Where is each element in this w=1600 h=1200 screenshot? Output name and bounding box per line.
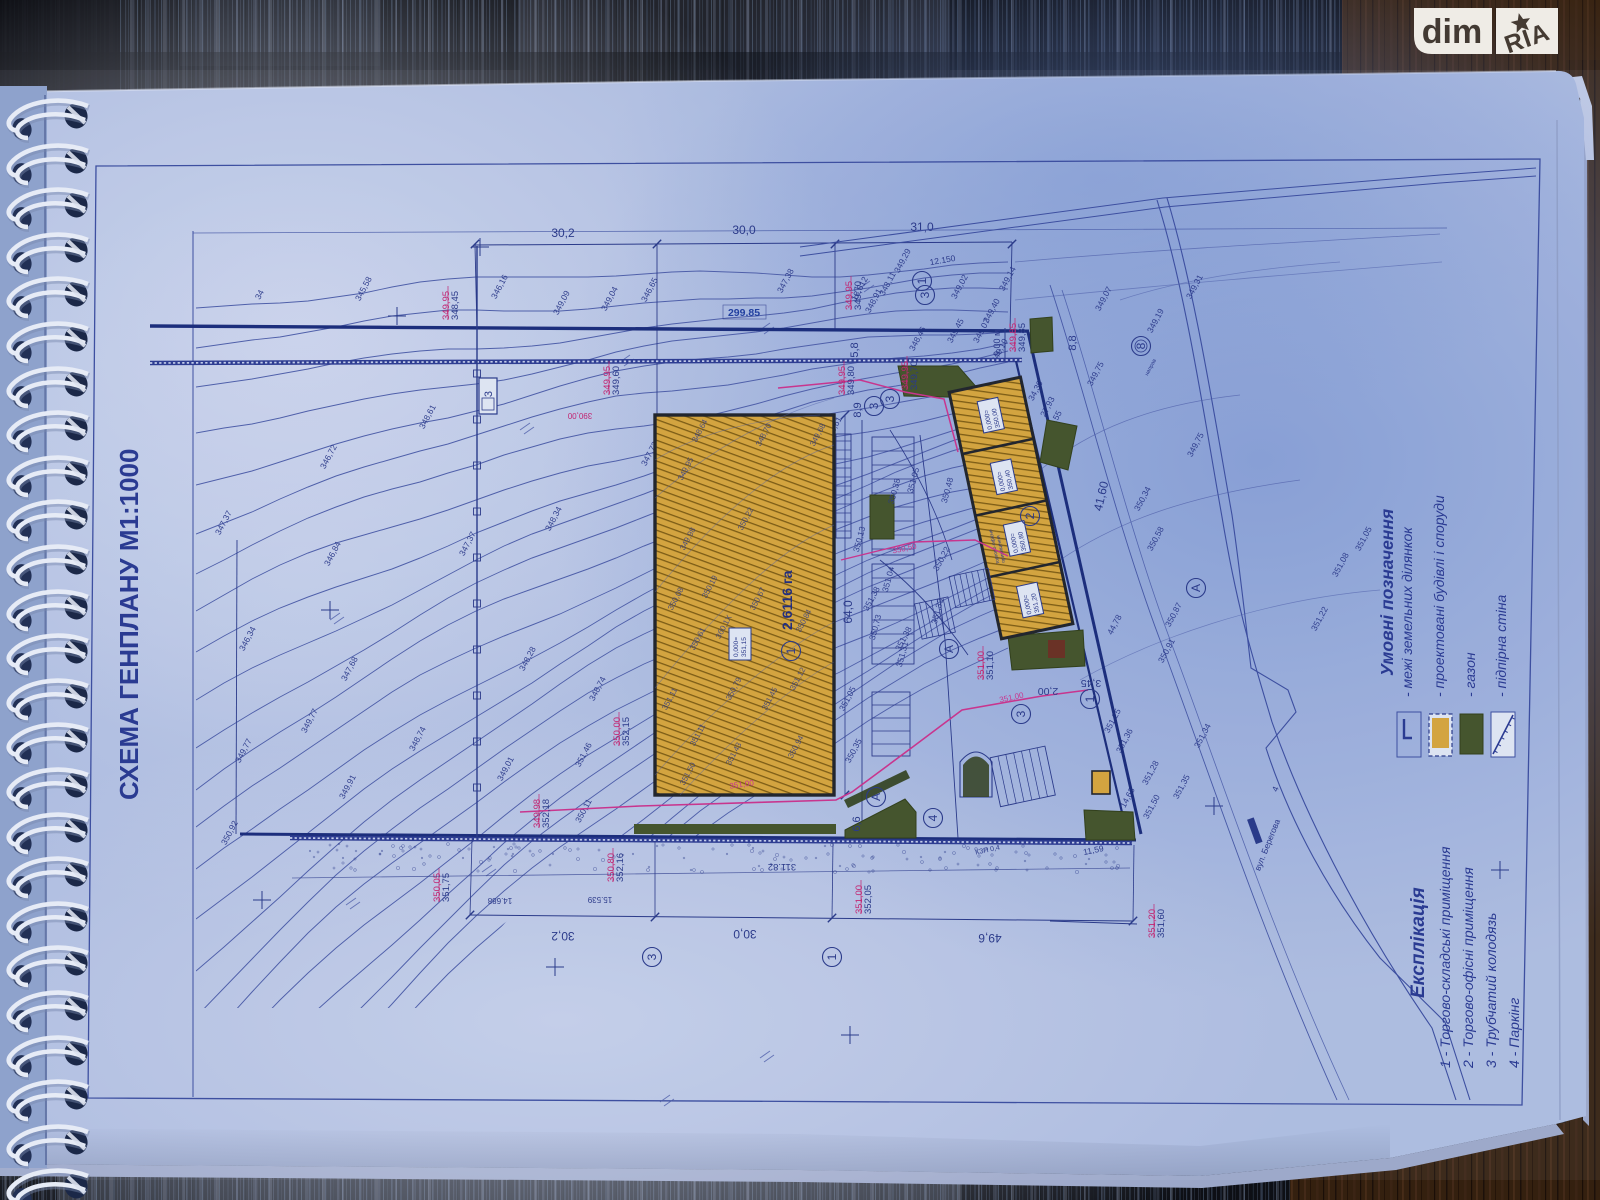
svg-text:299.85: 299.85	[728, 307, 760, 319]
svg-text:349,70: 349,70	[909, 361, 920, 390]
svg-text:351,10: 351,10	[985, 651, 996, 680]
svg-text:1: 1	[915, 277, 929, 284]
svg-text:0,000=: 0,000=	[733, 637, 740, 657]
svg-text:348,45: 348,45	[450, 291, 461, 320]
svg-text:- підпірна стіна: - підпірна стіна	[1493, 594, 1509, 697]
svg-text:349,70: 349,70	[853, 281, 864, 310]
svg-text:8: 8	[1134, 342, 1148, 349]
svg-text:352,18: 352,18	[541, 799, 552, 828]
svg-text:1: 1	[784, 647, 798, 654]
svg-text:Експлікація: Експлікація	[1408, 887, 1429, 998]
svg-text:8,9: 8,9	[852, 402, 864, 417]
svg-text:351,15: 351,15	[741, 637, 748, 657]
svg-text:15.539: 15.539	[587, 895, 612, 904]
svg-text:1: 1	[1083, 695, 1097, 702]
svg-text:49,6: 49,6	[978, 931, 1002, 945]
svg-text:3: 3	[867, 402, 881, 409]
svg-text:351,60: 351,60	[1156, 909, 1167, 938]
svg-text:А: А	[942, 645, 956, 653]
svg-text:3 - Трубчатий колодязь: 3 - Трубчатий колодязь	[1483, 913, 1499, 1068]
svg-text:3: 3	[1014, 710, 1028, 717]
svg-text:30,0: 30,0	[732, 223, 756, 237]
svg-text:2,6116 га: 2,6116 га	[779, 570, 795, 630]
svg-text:6,6: 6,6	[851, 816, 863, 831]
svg-text:30,2: 30,2	[551, 929, 575, 943]
svg-text:390,00: 390,00	[567, 411, 592, 420]
svg-text:349,85: 349,85	[1017, 323, 1028, 352]
svg-text:14.688: 14.688	[487, 896, 512, 905]
svg-text:5,8: 5,8	[849, 342, 861, 357]
svg-text:352,16: 352,16	[615, 853, 626, 882]
svg-text:3,45: 3,45	[1081, 677, 1102, 689]
svg-text:3: 3	[883, 395, 897, 402]
svg-text:Умовні позначення: Умовні позначення	[1377, 509, 1397, 676]
svg-text:1 - Торгово-складські приміщен: 1 - Торгово-складські приміщення	[1437, 846, 1453, 1068]
svg-text:3: 3	[918, 291, 932, 298]
svg-text:4: 4	[926, 814, 940, 821]
svg-text:349,80: 349,80	[846, 366, 857, 395]
svg-text:64,0: 64,0	[841, 600, 855, 624]
svg-text:4 - Паркінг: 4 - Паркінг	[1506, 998, 1522, 1068]
svg-text:352,15: 352,15	[621, 717, 632, 746]
svg-text:30,2: 30,2	[551, 226, 575, 240]
svg-text:311.82: 311.82	[768, 861, 796, 872]
svg-text:30,0: 30,0	[733, 927, 757, 941]
svg-text:349,60: 349,60	[611, 366, 622, 395]
svg-text:8,8: 8,8	[1067, 335, 1079, 350]
svg-text:- межі земельних ділянкок: - межі земельних ділянкок	[1399, 526, 1415, 697]
svg-text:2,00: 2,00	[1038, 685, 1059, 697]
svg-text:- газон: - газон	[1462, 652, 1478, 697]
svg-text:352,05: 352,05	[863, 885, 874, 914]
svg-text:1: 1	[825, 953, 839, 960]
svg-text:А: А	[1189, 584, 1203, 592]
svg-text:3: 3	[645, 953, 659, 960]
svg-text:А: А	[869, 793, 883, 801]
svg-text:3: 3	[483, 391, 495, 397]
svg-text:СХЕМА ГЕНПЛАНУ М1:1000: СХЕМА ГЕНПЛАНУ М1:1000	[114, 449, 144, 800]
svg-text:2: 2	[1023, 512, 1037, 519]
svg-text:- проектовані будівлі і спору: - проектовані будівлі і споруди	[1431, 495, 1447, 697]
svg-text:2 - Торгово-офісні приміщення: 2 - Торгово-офісні приміщення	[1460, 867, 1476, 1069]
svg-text:9,00 м: 9,00 м	[992, 330, 1002, 356]
svg-text:dim: dim	[1422, 13, 1482, 51]
svg-text:351,75: 351,75	[441, 873, 452, 902]
